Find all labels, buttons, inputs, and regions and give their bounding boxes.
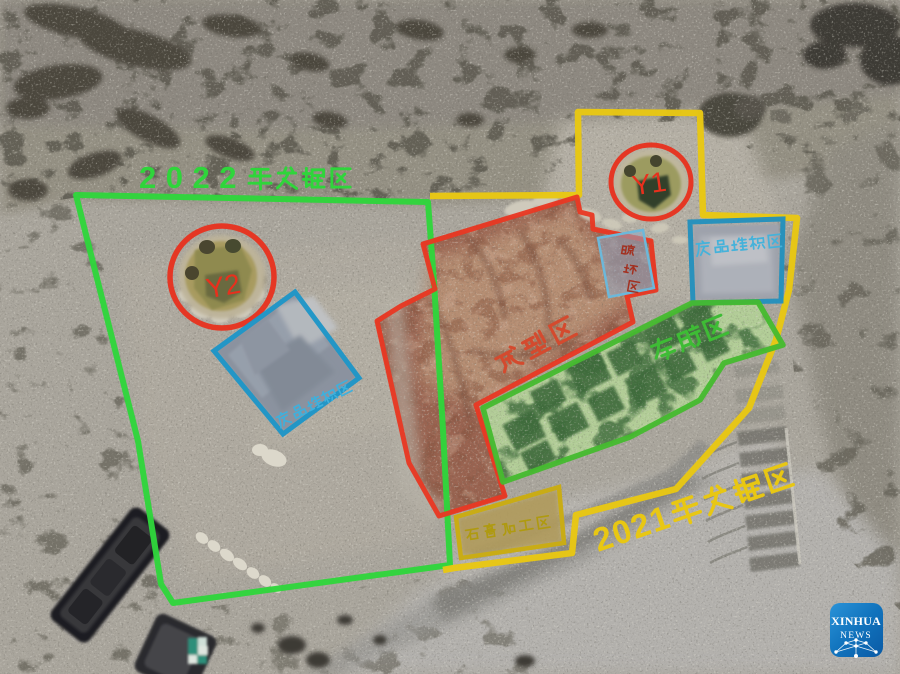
svg-text:XINHUA: XINHUA <box>831 614 881 628</box>
svg-text:Y2: Y2 <box>204 268 243 304</box>
svg-text:2022: 2022 <box>139 160 246 195</box>
svg-text:Y1: Y1 <box>630 166 668 201</box>
